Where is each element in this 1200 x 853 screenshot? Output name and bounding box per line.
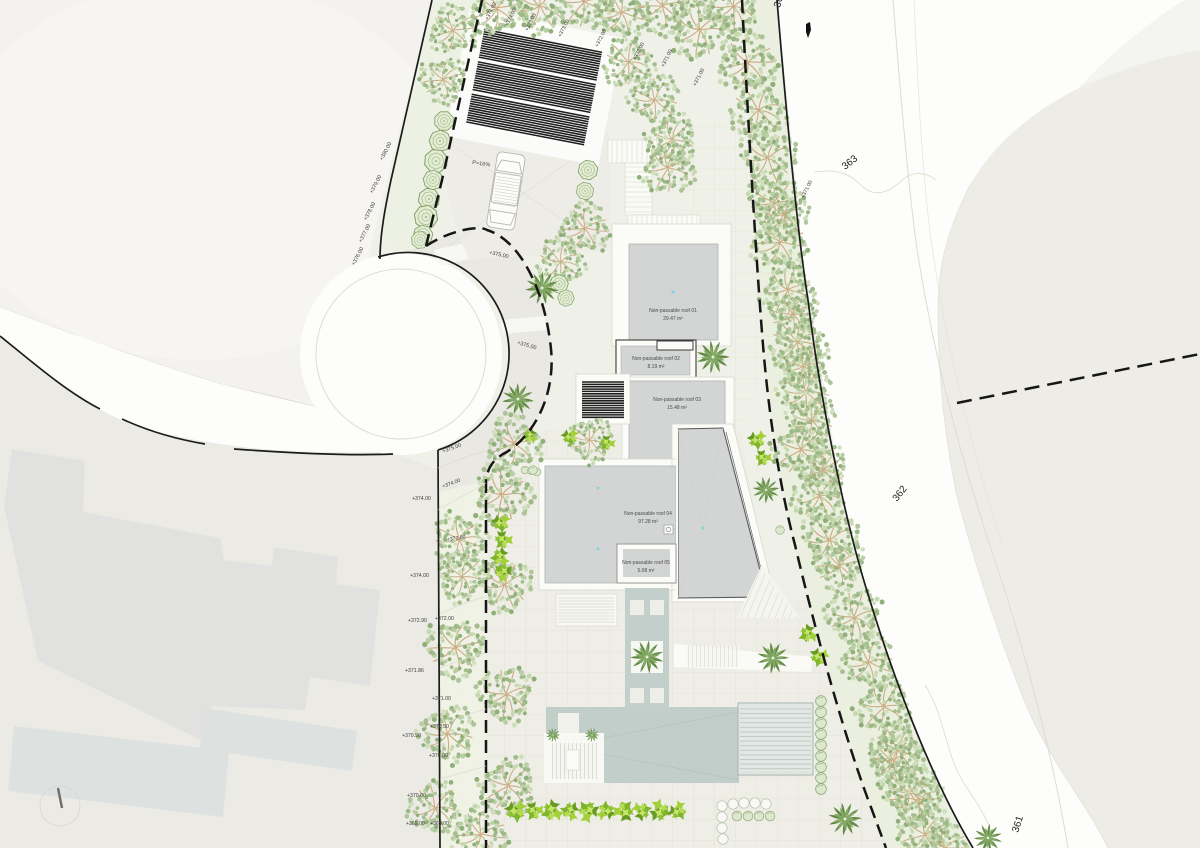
svg-text:+370.00: +370.00 (407, 793, 426, 799)
svg-text:+371.00: +371.00 (432, 696, 451, 702)
svg-text:+370.50: +370.50 (402, 733, 421, 739)
svg-text:+374.00: +374.00 (410, 573, 429, 579)
svg-text:29.47 m²: 29.47 m² (663, 316, 683, 322)
svg-text:Non-passable roof 04: Non-passable roof 04 (624, 511, 672, 517)
svg-text:+372.00: +372.00 (435, 616, 454, 622)
svg-text:97.28 m²: 97.28 m² (638, 519, 658, 525)
svg-text:+369.00: +369.00 (406, 821, 425, 827)
svg-text:+372.90: +372.90 (408, 618, 427, 624)
svg-text:+369.00: +369.00 (430, 821, 449, 827)
svg-text:Non-passable roof 03: Non-passable roof 03 (653, 397, 701, 403)
svg-text:Non-passable roof 02: Non-passable roof 02 (632, 356, 680, 362)
svg-text:Non-passable roof 01: Non-passable roof 01 (649, 308, 697, 314)
svg-text:+371.86: +371.86 (405, 668, 424, 674)
svg-text:+370.50: +370.50 (430, 724, 449, 730)
svg-text:5.08 m²: 5.08 m² (638, 568, 655, 574)
svg-text:Non-passable roof 05: Non-passable roof 05 (622, 560, 670, 566)
svg-text:15.48 m²: 15.48 m² (667, 405, 687, 411)
svg-text:+374.00: +374.00 (412, 496, 431, 502)
svg-text:8.19 m²: 8.19 m² (648, 364, 665, 370)
svg-text:+370.00: +370.00 (429, 753, 448, 759)
